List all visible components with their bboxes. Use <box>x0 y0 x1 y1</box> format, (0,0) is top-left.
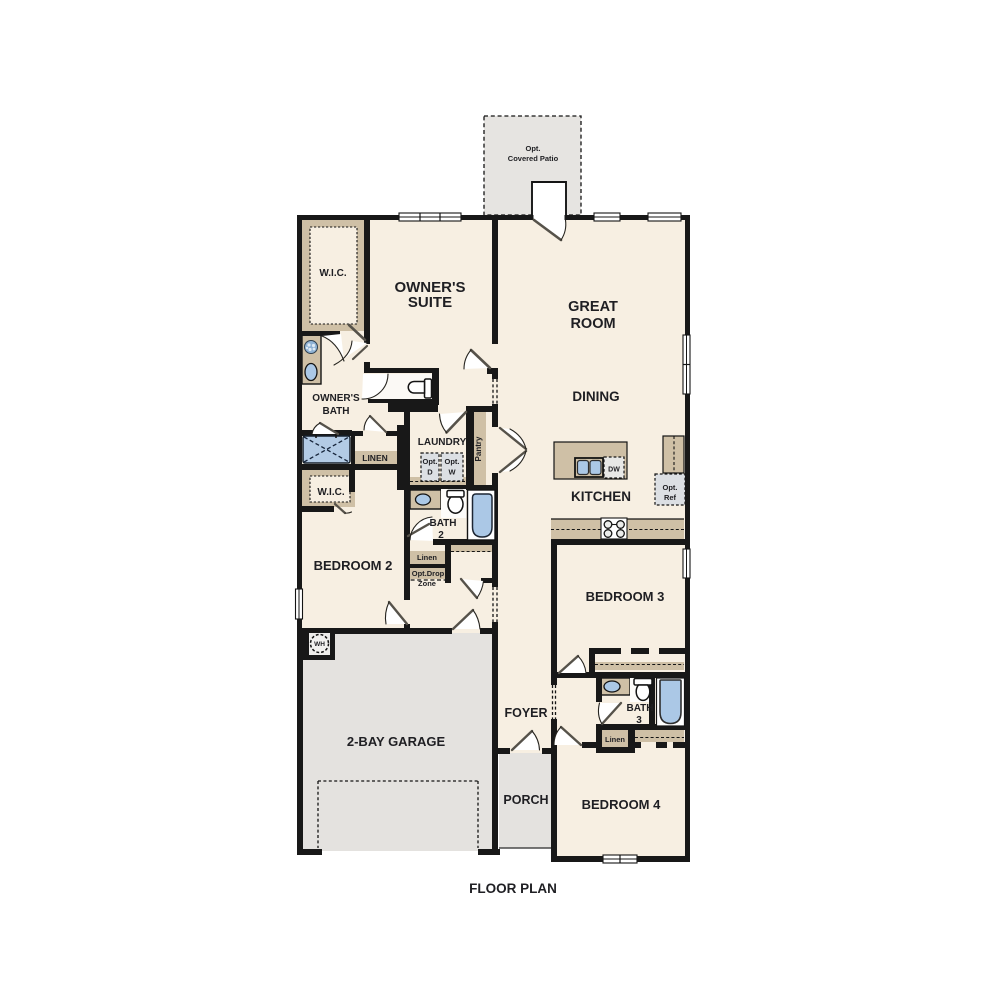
svg-text:LAUNDRY: LAUNDRY <box>418 437 467 448</box>
svg-text:Pantry: Pantry <box>474 436 483 461</box>
svg-text:Covered Patio: Covered Patio <box>508 154 559 163</box>
svg-text:BATH: BATH <box>322 406 349 417</box>
svg-text:GREAT: GREAT <box>568 299 618 315</box>
svg-text:DINING: DINING <box>572 389 619 404</box>
svg-text:Opt.: Opt. <box>663 483 678 492</box>
svg-text:BATH: BATH <box>429 518 456 529</box>
svg-text:Opt.Drop: Opt.Drop <box>412 569 445 578</box>
svg-text:2-BAY GARAGE: 2-BAY GARAGE <box>347 734 446 749</box>
svg-text:DW: DW <box>608 467 620 474</box>
svg-text:WH: WH <box>314 641 325 648</box>
svg-text:Opt.: Opt. <box>526 144 541 153</box>
svg-text:BEDROOM 3: BEDROOM 3 <box>586 589 665 604</box>
svg-text:W: W <box>448 468 456 477</box>
svg-text:ROOM: ROOM <box>570 316 615 332</box>
svg-text:Opt.: Opt. <box>445 457 460 466</box>
svg-text:W.I.C.: W.I.C. <box>319 268 346 279</box>
svg-text:3: 3 <box>636 715 642 726</box>
svg-text:SUITE: SUITE <box>408 294 452 311</box>
svg-text:OWNER'S: OWNER'S <box>312 393 360 404</box>
svg-text:Ref: Ref <box>664 493 677 502</box>
svg-text:FOYER: FOYER <box>504 706 547 720</box>
svg-text:Linen: Linen <box>417 553 437 562</box>
svg-text:Zone: Zone <box>418 579 436 588</box>
svg-text:KITCHEN: KITCHEN <box>571 489 631 504</box>
svg-text:LINEN: LINEN <box>362 453 388 463</box>
svg-text:2: 2 <box>438 530 444 541</box>
svg-text:BEDROOM 4: BEDROOM 4 <box>582 797 662 812</box>
svg-text:BEDROOM 2: BEDROOM 2 <box>314 558 393 573</box>
svg-text:PORCH: PORCH <box>503 793 548 807</box>
svg-text:BATH: BATH <box>626 703 653 714</box>
svg-text:D: D <box>427 468 433 477</box>
svg-text:Opt.: Opt. <box>423 457 438 466</box>
svg-text:Linen: Linen <box>605 735 625 744</box>
svg-text:FLOOR PLAN: FLOOR PLAN <box>469 881 557 896</box>
svg-text:W.I.C.: W.I.C. <box>317 487 344 498</box>
